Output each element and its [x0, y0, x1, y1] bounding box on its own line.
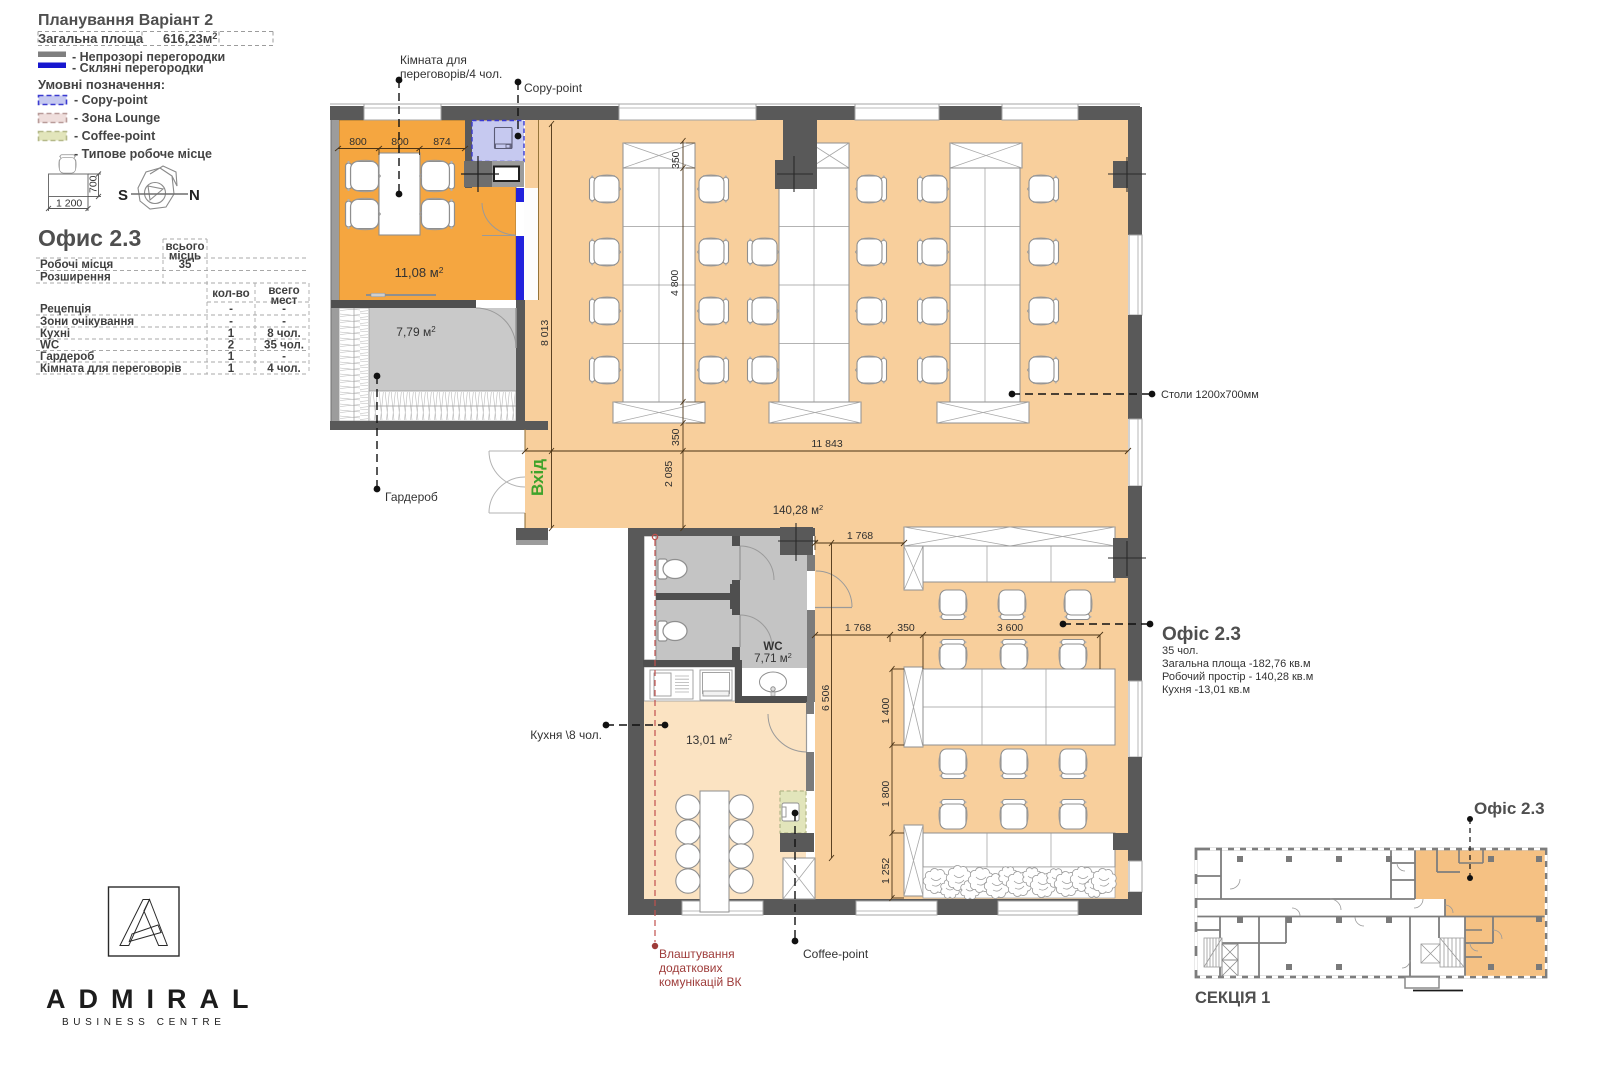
svg-text:WC: WC — [763, 641, 782, 653]
svg-text:350: 350 — [670, 428, 682, 446]
svg-text:350: 350 — [670, 151, 682, 169]
svg-text:Кімната для: Кімната для — [400, 53, 467, 67]
svg-text:Кімната для переговорів: Кімната для переговорів — [40, 363, 181, 375]
svg-text:Офіс 2.3: Офіс 2.3 — [1474, 799, 1545, 818]
svg-text:-: - — [229, 316, 233, 328]
svg-text:6 506: 6 506 — [820, 685, 832, 711]
svg-text:4 чол.: 4 чол. — [267, 363, 301, 375]
svg-text:Гардероб: Гардероб — [385, 490, 438, 504]
svg-text:2 085: 2 085 — [663, 461, 675, 487]
svg-text:кол-во: кол-во — [212, 288, 249, 300]
svg-text:1 800: 1 800 — [880, 781, 892, 807]
svg-text:1 768: 1 768 — [845, 622, 871, 634]
svg-text:- Скляні перегородки: - Скляні перегородки — [72, 61, 204, 75]
svg-text:-: - — [229, 304, 233, 316]
svg-text:1: 1 — [228, 363, 235, 375]
svg-text:Кухня -13,01 кв.м: Кухня -13,01 кв.м — [1162, 684, 1250, 696]
svg-text:S: S — [118, 187, 128, 204]
svg-text:11 843: 11 843 — [811, 438, 842, 450]
svg-text:комунікацій ВК: комунікацій ВК — [659, 975, 742, 989]
svg-text:додаткових: додаткових — [659, 961, 722, 975]
svg-text:616,23м2: 616,23м2 — [163, 31, 217, 46]
svg-text:8 013: 8 013 — [539, 320, 551, 346]
svg-text:4 800: 4 800 — [669, 270, 681, 296]
svg-text:Робочий простір - 140,28 кв.м: Робочий простір - 140,28 кв.м — [1162, 671, 1313, 683]
svg-text:35 чол.: 35 чол. — [1162, 645, 1198, 657]
svg-text:Столи 1200х700мм: Столи 1200х700мм — [1161, 389, 1259, 401]
svg-text:BUSINESS CENTRE: BUSINESS CENTRE — [62, 1017, 225, 1028]
svg-text:N: N — [189, 187, 200, 204]
svg-text:переговорів/4 чол.: переговорів/4 чол. — [400, 67, 502, 81]
svg-text:3 600: 3 600 — [997, 622, 1023, 634]
svg-text:-: - — [282, 304, 286, 316]
svg-text:Планування Варіант 2: Планування Варіант 2 — [38, 12, 213, 29]
svg-text:Кухня \8 чол.: Кухня \8 чол. — [530, 728, 602, 742]
svg-text:- Типове робоче місце: - Типове робоче місце — [74, 147, 212, 161]
svg-text:800: 800 — [349, 136, 367, 148]
svg-text:Coffee-point: Coffee-point — [803, 947, 869, 961]
svg-text:- Coffee-point: - Coffee-point — [74, 129, 156, 143]
svg-text:1 768: 1 768 — [847, 530, 873, 542]
svg-text:140,28 м2: 140,28 м2 — [773, 503, 823, 517]
svg-text:7,79 м2: 7,79 м2 — [396, 325, 436, 339]
svg-text:874: 874 — [433, 136, 451, 148]
svg-text:- Зона Lounge: - Зона Lounge — [74, 111, 160, 125]
svg-text:Кухні: Кухні — [40, 328, 70, 340]
svg-text:СЕКЦІЯ 1: СЕКЦІЯ 1 — [1195, 989, 1270, 1007]
svg-text:Зони очікування: Зони очікування — [40, 316, 134, 328]
svg-text:1 200: 1 200 — [56, 198, 82, 210]
svg-text:13,01 м2: 13,01 м2 — [686, 733, 733, 747]
svg-text:35: 35 — [179, 259, 192, 271]
svg-text:Влаштування: Влаштування — [659, 947, 735, 961]
svg-text:1: 1 — [228, 351, 235, 363]
svg-text:1 400: 1 400 — [880, 698, 892, 724]
svg-text:8 чол.: 8 чол. — [267, 328, 301, 340]
svg-text:350: 350 — [897, 622, 915, 634]
svg-text:7,71 м2: 7,71 м2 — [754, 651, 792, 665]
svg-text:35 чол.: 35 чол. — [264, 340, 304, 352]
svg-text:- Copy-point: - Copy-point — [74, 93, 148, 107]
svg-text:Умовні позначення:: Умовні позначення: — [38, 77, 165, 92]
svg-text:Рецепція: Рецепція — [40, 304, 91, 316]
svg-text:Розширення: Розширення — [40, 272, 111, 284]
svg-text:Офіс 2.3: Офіс 2.3 — [1162, 624, 1241, 645]
svg-text:Офис 2.3: Офис 2.3 — [38, 225, 141, 251]
svg-text:700: 700 — [88, 175, 100, 193]
svg-text:Робочі місця: Робочі місця — [40, 259, 113, 271]
svg-text:1: 1 — [228, 328, 235, 340]
svg-text:2: 2 — [228, 340, 234, 352]
svg-text:1 252: 1 252 — [880, 858, 892, 884]
svg-text:Вхід: Вхід — [528, 459, 547, 496]
svg-text:ADMIRAL: ADMIRAL — [46, 984, 261, 1014]
svg-text:800: 800 — [391, 136, 409, 148]
svg-text:Copy-point: Copy-point — [524, 81, 583, 95]
svg-text:-: - — [282, 316, 286, 328]
svg-text:Загальна площа: Загальна площа — [38, 31, 144, 46]
svg-text:11,08 м2: 11,08 м2 — [395, 265, 444, 280]
svg-text:-: - — [282, 351, 286, 363]
svg-text:Загальна площа -182,76 кв.м: Загальна площа -182,76 кв.м — [1162, 658, 1311, 670]
svg-text:Гардероб: Гардероб — [40, 351, 94, 363]
svg-text:WC: WC — [40, 340, 59, 352]
